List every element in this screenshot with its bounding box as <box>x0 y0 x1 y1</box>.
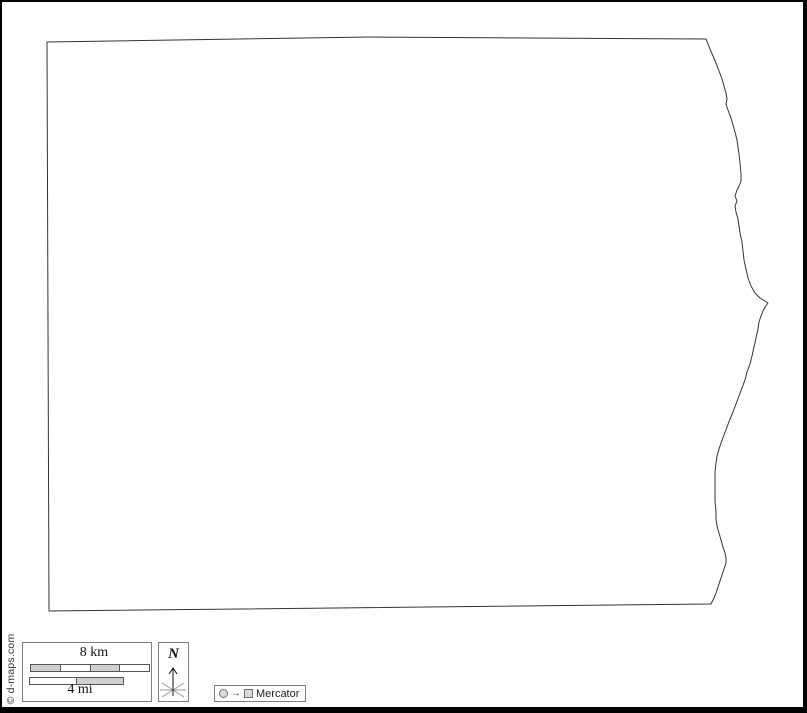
north-arrow-box: N <box>158 642 189 702</box>
globe-circle-icon <box>219 689 228 698</box>
km-bar-segment <box>60 665 90 671</box>
scale-bar-box: 8 km 4 mi <box>22 642 152 702</box>
north-label: N <box>159 646 188 663</box>
projection-label: Mercator <box>256 688 299 700</box>
scale-km-label: 8 km <box>30 645 158 661</box>
projection-arrow-icon: → <box>231 689 241 699</box>
km-bar-segment <box>31 665 60 671</box>
scale-mi-label: 4 mi <box>16 682 144 698</box>
map-outline <box>0 0 807 713</box>
compass-star-icon <box>159 663 188 701</box>
projected-square-icon <box>244 689 253 698</box>
km-bar-segment <box>90 665 120 671</box>
projection-box: → Mercator <box>214 685 306 702</box>
scale-km-bar <box>30 664 150 672</box>
km-bar-segment <box>119 665 149 671</box>
map-page: © d-maps.com 8 km 4 mi N → Mercator <box>0 0 807 713</box>
